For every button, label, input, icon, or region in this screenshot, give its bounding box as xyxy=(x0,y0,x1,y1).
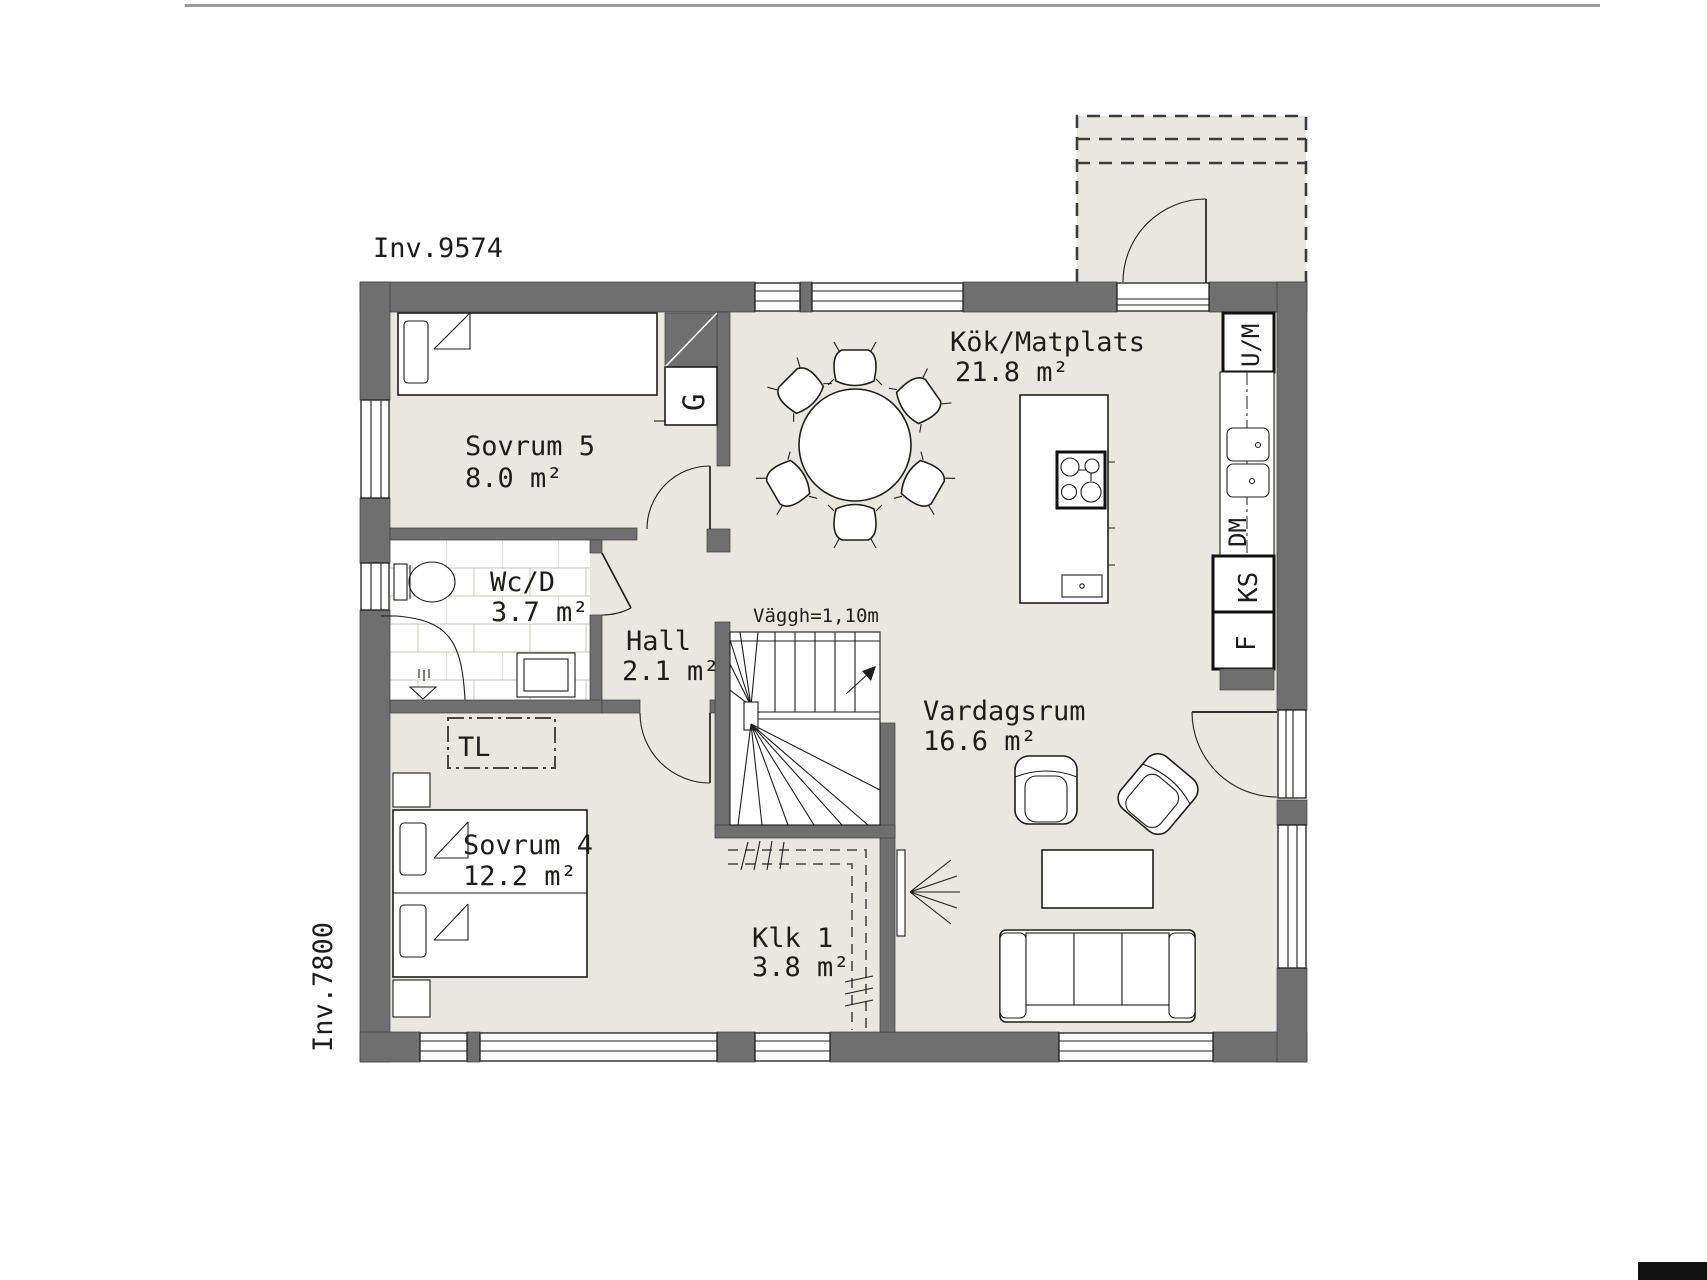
oven-micro-label: U/M xyxy=(1237,324,1265,367)
toilet xyxy=(394,562,455,602)
cooktop xyxy=(1057,452,1105,508)
floor-plan-page: G xyxy=(0,0,1707,1280)
window xyxy=(812,283,963,311)
kitchen-counter: U/M DM KS F xyxy=(1213,313,1274,690)
coffee-table xyxy=(1042,850,1153,908)
window xyxy=(480,1033,717,1061)
room-name-kok: Kök/Matplats xyxy=(950,327,1145,358)
room-name-vardagsrum: Vardagsrum xyxy=(923,696,1086,727)
room-name-sovrum4: Sovrum 4 xyxy=(463,830,593,861)
bed-sovrum5 xyxy=(398,313,657,395)
fridge-label: KS xyxy=(1234,572,1264,603)
room-name-klk: Klk 1 xyxy=(752,923,833,954)
wardrobe-label: G xyxy=(677,394,711,411)
freezer-label: F xyxy=(1232,635,1262,651)
armchair xyxy=(1015,756,1077,824)
dishwasher-label: DM xyxy=(1224,518,1252,547)
top-rule xyxy=(185,4,1600,7)
window xyxy=(1059,1033,1213,1061)
window xyxy=(755,1033,830,1061)
kitchen-island xyxy=(1020,395,1115,603)
room-area-vardagsrum: 16.6 m² xyxy=(923,726,1037,757)
room-name-wc: Wc/D xyxy=(490,567,555,598)
window xyxy=(361,563,389,610)
room-name-hall: Hall xyxy=(626,626,691,657)
room-area-wc: 3.7 m² xyxy=(491,597,589,628)
corner-block xyxy=(1638,1262,1707,1280)
room-area-hall: 2.1 m² xyxy=(622,656,720,687)
washbasin xyxy=(517,653,575,697)
staircase xyxy=(730,632,880,825)
laundry-reserve-label: TL xyxy=(458,732,491,763)
room-area-klk: 3.8 m² xyxy=(752,952,850,983)
window xyxy=(420,1033,467,1061)
window xyxy=(361,400,389,498)
room-name-sovrum5: Sovrum 5 xyxy=(465,431,595,462)
room-area-sovrum5: 8.0 m² xyxy=(465,463,563,494)
window xyxy=(1278,825,1306,968)
room-area-sovrum4: 12.2 m² xyxy=(463,861,577,892)
entrance-porch xyxy=(1077,116,1306,282)
room-area-kok: 21.8 m² xyxy=(955,357,1069,388)
stair-wall-note: Väggh=1,10m xyxy=(753,605,879,627)
window xyxy=(755,283,800,311)
sofa xyxy=(1000,930,1195,1022)
height-dimension-label: Inv.7800 xyxy=(308,922,339,1052)
width-dimension-label: Inv.9574 xyxy=(373,233,503,264)
